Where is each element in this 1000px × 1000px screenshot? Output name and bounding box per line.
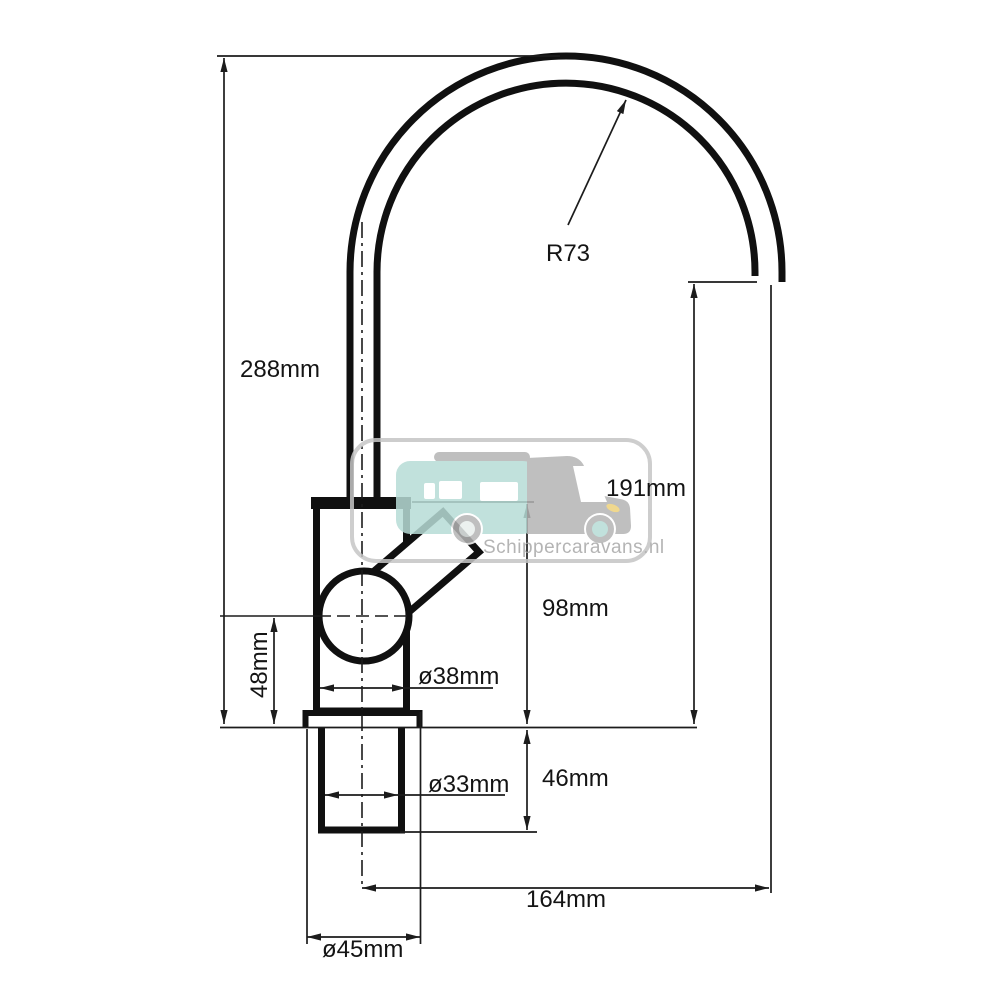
caravan-window-1 [439,481,462,499]
dim-label-98mm: 98mm [542,595,609,622]
caravan-roofbox [434,452,530,462]
faucet-technical-drawing: Schippercaravans.nl 288mm R73 191mm 98mm… [0,0,1000,1000]
dim-label-46mm: 46mm [542,765,609,792]
spout-outer-line [350,56,782,499]
dim-label-33mm: ø33mm [428,771,509,798]
caravan-window-small [424,483,435,499]
dim-label-45mm: ø45mm [322,936,403,963]
dim-label-288mm: 288mm [240,356,320,383]
dim-label-164mm: 164mm [526,886,606,913]
caravan-window-2 [480,482,518,501]
caravan-icon [396,452,631,545]
dim-label-48mm: 48mm [246,631,273,698]
dim-r73-leader [568,100,626,225]
dim-label-38mm: ø38mm [418,663,499,690]
dim-label-191mm: 191mm [606,475,686,502]
diagram-canvas: Schippercaravans.nl 288mm R73 191mm 98mm… [0,0,1000,1000]
caravan-rear-wheel [456,518,478,540]
spout-inner-line [377,83,755,499]
watermark-text: Schippercaravans.nl [483,537,665,558]
dim-label-r73: R73 [546,240,590,267]
